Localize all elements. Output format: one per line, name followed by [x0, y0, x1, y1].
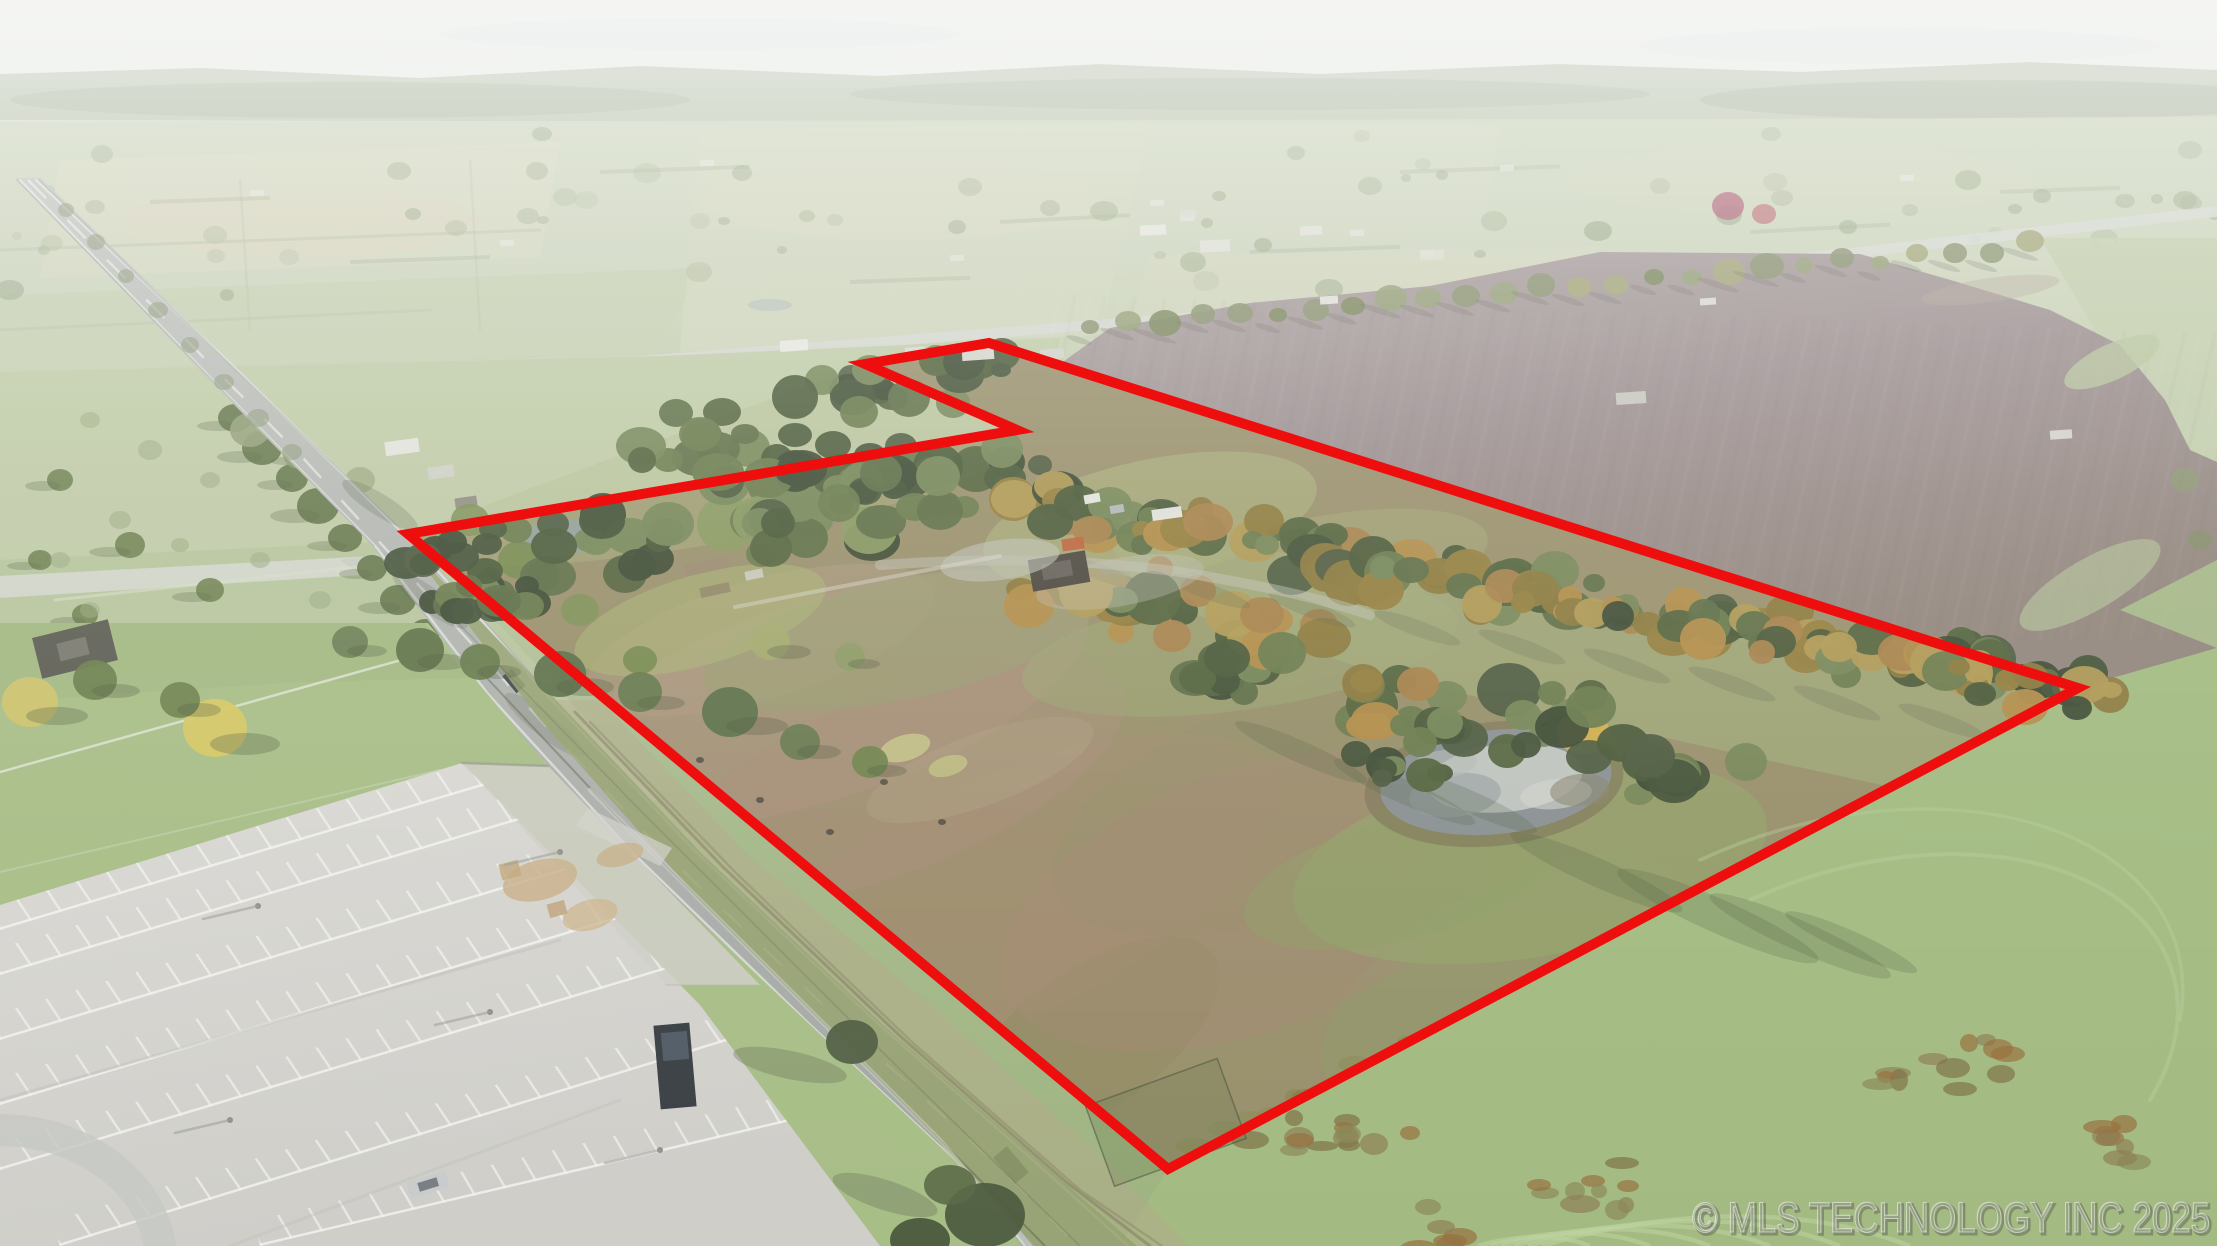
svg-text:© MLS TECHNOLOGY INC 2025: © MLS TECHNOLOGY INC 2025: [1692, 1194, 2210, 1242]
